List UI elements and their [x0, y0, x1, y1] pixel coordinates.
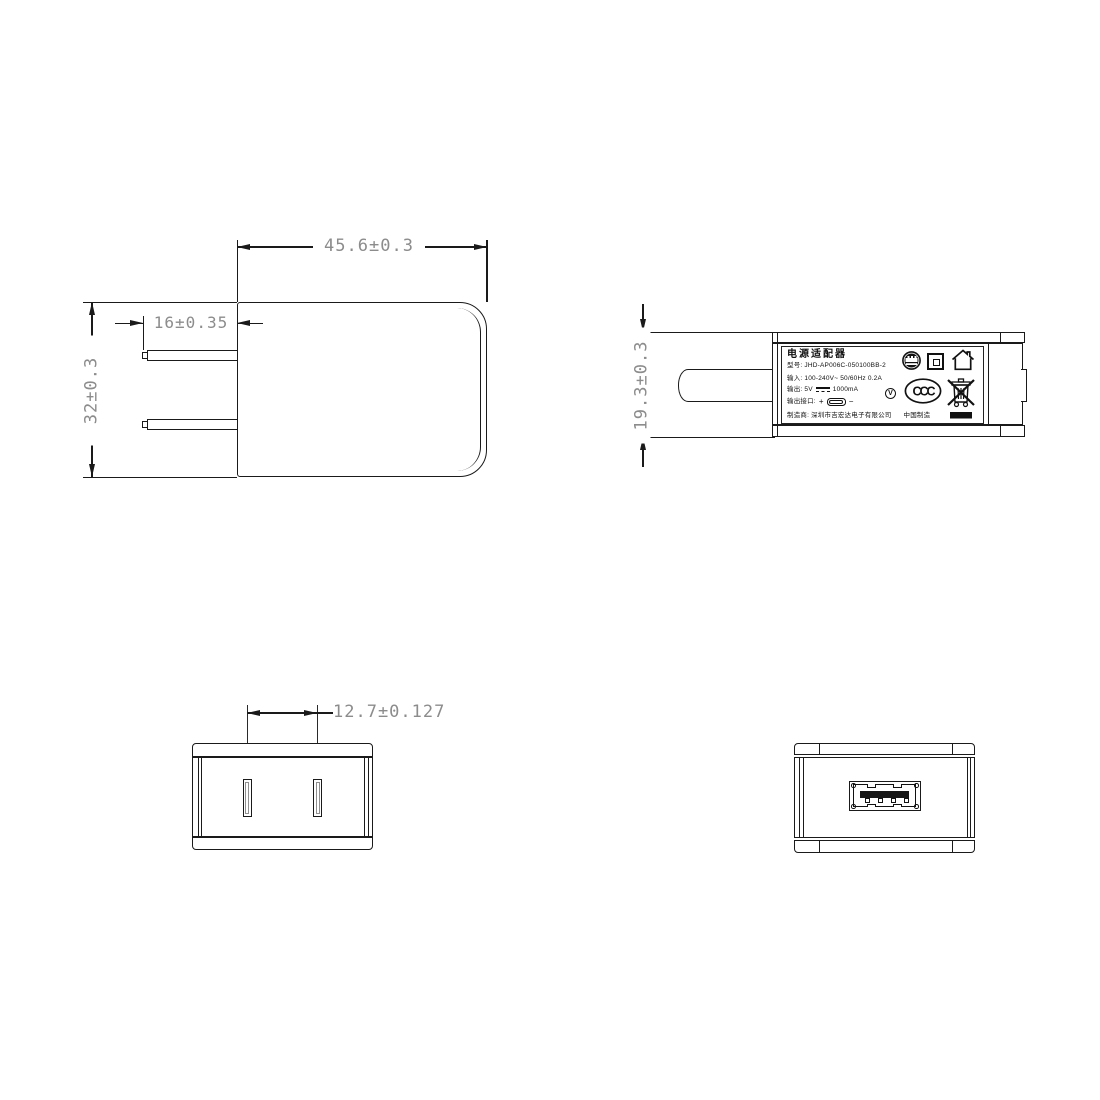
rear-bottom-band-divider-right — [952, 840, 953, 853]
usb-contact-1 — [865, 798, 870, 803]
bottom-inner-line-left-a — [198, 757, 199, 837]
drawing-canvas: 45.6±0.3 16±0.35 32±0.3 — [0, 0, 1100, 1100]
svg-text:CCC: CCC — [912, 385, 935, 399]
label-model: 型号: JHD-AP006C-050100BB-2 — [787, 363, 886, 370]
rear-inner-line-left-b — [803, 757, 804, 838]
side-view: 19.3±0.3 电源适配器 型号: JHD-AP006C-050100BB-2… — [620, 290, 1040, 490]
usb-shell-protrusion — [1021, 369, 1027, 402]
band-divider-top — [1000, 332, 1001, 343]
dim-thick-ext-bottom — [636, 437, 775, 439]
dim-spacing-text: 12.7±0.127 — [333, 704, 445, 721]
rear-inner-line-right-a — [967, 757, 968, 838]
bottom-top-band — [192, 743, 373, 757]
label-input: 输入: 100-240V~ 50/60Hz 0.2A — [787, 376, 882, 383]
band-divider-bottom — [1000, 425, 1001, 437]
dim-spacing-arrow-left — [247, 710, 260, 716]
dim-height-arrow-bottom — [89, 464, 95, 477]
product-label: 电源适配器 型号: JHD-AP006C-050100BB-2 输入: 100-… — [781, 346, 984, 424]
usb-tab-top-left — [867, 784, 876, 788]
efficiency-v-icon: V — [885, 388, 896, 399]
usb-tab-top-right — [893, 784, 902, 788]
dim-width-arrow-left — [237, 244, 250, 250]
label-minus: − — [849, 398, 854, 406]
label-title: 电源适配器 — [787, 350, 847, 360]
bottom-bottom-band — [192, 837, 373, 850]
usb-tab-bottom-left — [867, 804, 876, 808]
bottom-mid-body — [192, 757, 373, 837]
dc-symbol-icon — [816, 387, 830, 393]
bottom-inner-line-right-b — [368, 757, 369, 837]
usb-contact-2 — [878, 798, 883, 803]
adapter-bottom-band — [772, 425, 1025, 437]
label-made-in: 中国制造 — [904, 413, 931, 420]
usb-contact-3 — [891, 798, 896, 803]
usb-port-shell — [849, 781, 921, 811]
dim-width-text: 45.6±0.3 — [313, 238, 425, 255]
dim-width-ext-left — [237, 240, 239, 302]
usb-connector-icon — [827, 398, 846, 406]
label-port: 输出接口: + − — [787, 398, 854, 406]
dim-height-ext-bottom — [83, 477, 237, 479]
label-plus: + — [819, 398, 824, 406]
dim-pin-text: 16±0.35 — [146, 315, 236, 331]
dim-pin-arrow-left — [130, 320, 143, 326]
usb-end-view — [780, 695, 1040, 865]
rear-inner-line-left-a — [799, 757, 800, 838]
rear-top-band-divider-right — [952, 743, 953, 755]
dim-spacing-arrow-right — [304, 710, 317, 716]
usb-contact-4 — [904, 798, 909, 803]
label-manufacturer: 制造商: 深圳市吉宏达电子有限公司 中国制造 — [787, 413, 930, 420]
usb-tab-bottom-right — [893, 804, 902, 808]
rear-top-band — [794, 743, 975, 755]
class2-insulation-icon — [927, 353, 944, 370]
label-port-text: 输出接口: — [787, 399, 816, 406]
bottom-inner-line-left-b — [201, 757, 202, 837]
label-output-prefix: 输出: 5V — [787, 387, 813, 394]
rear-top-band-divider-left — [819, 743, 820, 755]
dim-height-ext-top — [83, 302, 237, 304]
rear-inner-line-right-b — [970, 757, 971, 838]
plug-pin-bottom — [147, 419, 238, 430]
rear-bottom-band — [794, 840, 975, 853]
label-manufacturer-text: 制造商: 深圳市吉宏达电子有限公司 — [787, 413, 892, 420]
dim-thick-text: 19.3±0.3 — [634, 328, 651, 444]
dim-width-ext-right — [486, 240, 488, 302]
plug-pin-side — [678, 369, 773, 402]
dim-height-arrow-top — [89, 302, 95, 315]
parting-line-left — [777, 332, 778, 437]
label-output-suffix: 1000mA — [833, 387, 858, 394]
indoor-use-house-icon — [951, 349, 975, 371]
dim-pin-arrow-right — [237, 320, 250, 326]
adapter-body-inner-edge — [452, 308, 481, 471]
adapter-body-front — [237, 302, 487, 477]
usb-tongue — [860, 791, 909, 798]
rear-bottom-band-divider-left — [819, 840, 820, 853]
parting-line-right — [988, 343, 989, 425]
dim-thick-ext-top — [636, 332, 775, 334]
weee-bin-icon — [947, 375, 975, 421]
front-view: 45.6±0.3 16±0.35 32±0.3 — [70, 235, 510, 495]
dim-thick-line-bottom — [642, 449, 644, 467]
plug-pin-top-tip — [142, 352, 148, 359]
label-output: 输出: 5V 1000mA — [787, 387, 858, 394]
pin-slot-right-inner — [316, 782, 320, 814]
usb-port-opening — [853, 784, 916, 807]
dim-height-text: 32±0.3 — [84, 336, 101, 446]
plug-pin-top — [147, 350, 238, 361]
plug-pin-bottom-tip — [142, 421, 148, 428]
ccc-mark-icon: CCC — [904, 378, 942, 404]
bottom-view: 12.7±0.127 — [180, 695, 480, 865]
bottom-inner-line-right-a — [364, 757, 365, 837]
pin-slot-left-inner — [245, 782, 249, 814]
greatwall-cert-icon — [902, 351, 921, 370]
adapter-top-band — [772, 332, 1025, 343]
